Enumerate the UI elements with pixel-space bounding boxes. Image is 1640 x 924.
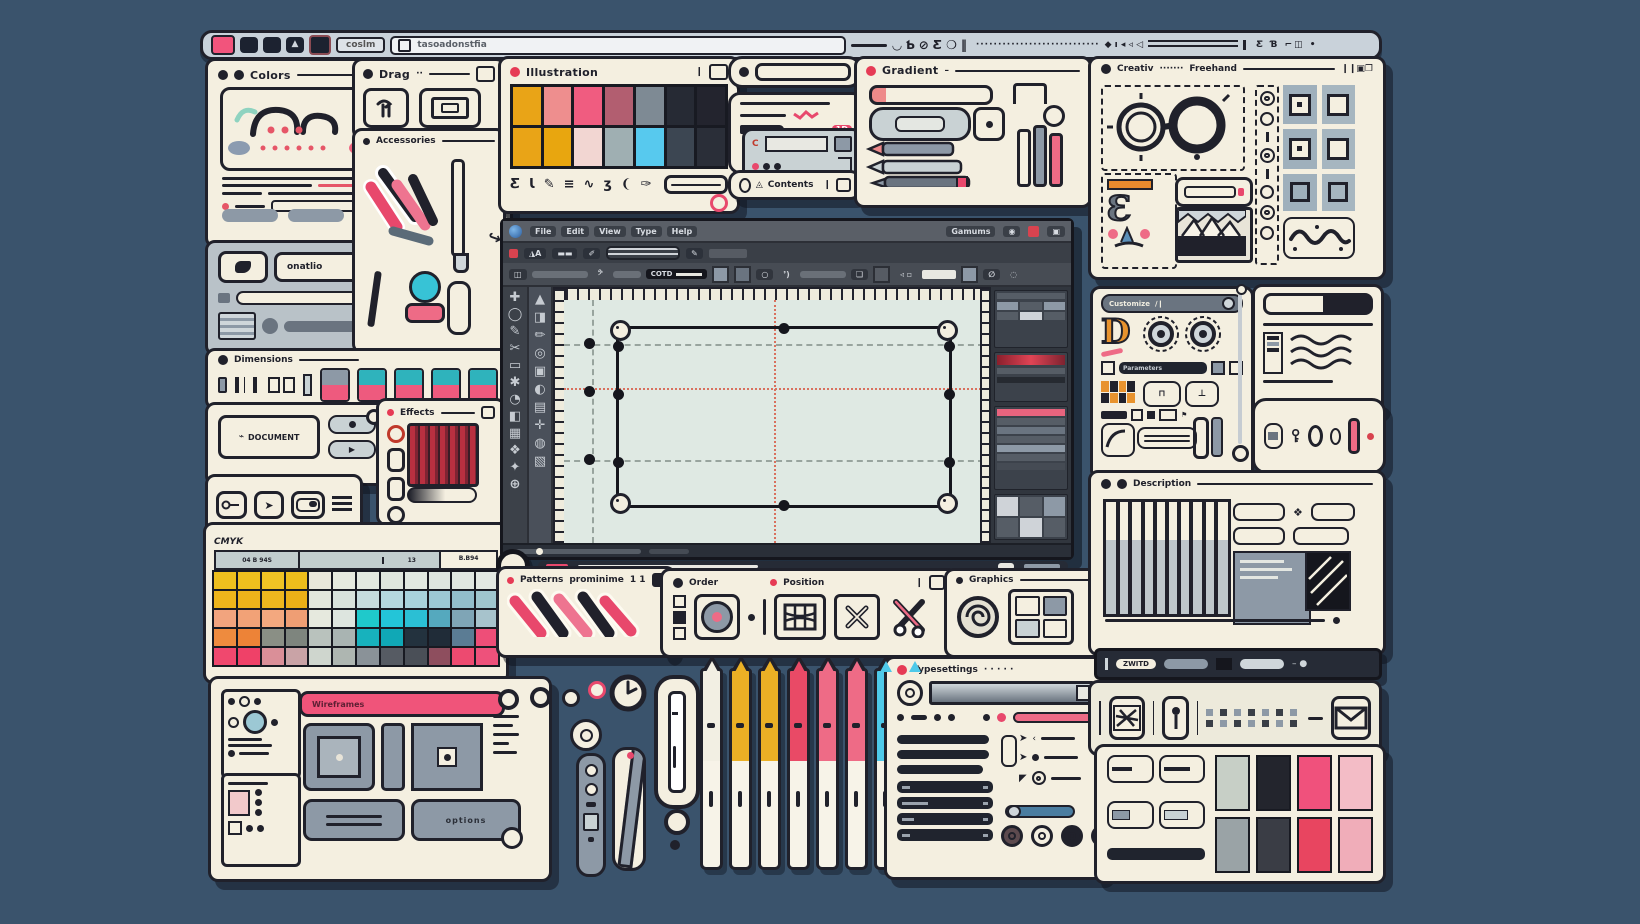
gradient-bar[interactable] <box>407 487 477 503</box>
color-swatch[interactable] <box>262 610 284 627</box>
triangle-tool-button[interactable]: ▲ <box>286 37 304 53</box>
contents-bar[interactable]: ◬ Contents ❙ <box>728 170 862 200</box>
tool-button[interactable] <box>263 37 281 53</box>
menu-item[interactable]: Edit <box>561 226 589 237</box>
chip-button[interactable] <box>357 368 387 402</box>
pen-tool[interactable] <box>451 159 465 257</box>
pen-ring[interactable] <box>664 809 690 835</box>
color-swatch[interactable] <box>262 572 284 589</box>
pink-slider[interactable] <box>1013 712 1095 723</box>
color-swatch[interactable] <box>286 648 308 665</box>
strip-ring[interactable] <box>1260 226 1274 240</box>
color-swatch[interactable] <box>636 87 664 125</box>
dial-knob[interactable] <box>1061 825 1083 847</box>
preset-row[interactable] <box>897 813 993 825</box>
tool-icon[interactable]: ▲ <box>535 293 545 306</box>
column-chart-block[interactable] <box>1103 499 1231 617</box>
square-btn[interactable] <box>873 266 890 283</box>
spiral-tool[interactable] <box>956 595 1000 639</box>
blue-slider[interactable] <box>1005 805 1075 818</box>
color-swatch[interactable] <box>357 572 379 589</box>
color-swatch[interactable] <box>513 128 541 166</box>
header-bar-icon[interactable]: ❙ <box>695 67 703 77</box>
color-swatch[interactable] <box>452 572 474 589</box>
list-pill[interactable] <box>897 750 989 759</box>
color-swatch[interactable] <box>381 610 403 627</box>
header-knob[interactable] <box>1222 297 1235 310</box>
chip-box[interactable] <box>1264 423 1283 449</box>
edge-anchor[interactable] <box>944 341 955 352</box>
panel-corner-icon[interactable] <box>929 575 945 590</box>
edge-anchor[interactable] <box>944 389 955 400</box>
color-swatch[interactable] <box>605 128 633 166</box>
unit-box[interactable] <box>218 377 227 393</box>
circle-icon2[interactable]: ◌ <box>1005 269 1022 280</box>
color-swatch[interactable] <box>286 572 308 589</box>
nib-box[interactable] <box>973 107 1005 141</box>
panel-corner-icon[interactable] <box>481 406 495 419</box>
pen-chip[interactable]: ✐ <box>583 248 600 259</box>
color-swatch[interactable] <box>405 591 427 608</box>
color-swatch[interactable] <box>544 128 572 166</box>
opt-dot[interactable] <box>997 713 1006 722</box>
teal-cap-icon[interactable] <box>409 271 441 303</box>
tool-icon[interactable]: ✏ <box>535 329 546 342</box>
tool-icon[interactable]: ◨ <box>534 311 546 324</box>
airbrush-tool[interactable] <box>869 107 971 141</box>
tool-icon[interactable]: ∿ <box>584 178 595 191</box>
mail-button[interactable] <box>1331 696 1371 740</box>
dial-button[interactable] <box>694 594 740 640</box>
tool-icon[interactable]: ✑ <box>641 178 652 191</box>
track-dot[interactable] <box>1236 284 1247 295</box>
pink-title-bar[interactable]: Wireframes <box>299 691 505 717</box>
list-pill[interactable] <box>897 735 989 744</box>
strip-knob[interactable] <box>1260 205 1275 220</box>
tool-button[interactable] <box>240 37 258 53</box>
tool-icon[interactable]: ◔ <box>509 393 520 406</box>
pencil-pair[interactable] <box>1017 129 1031 187</box>
knob[interactable] <box>387 425 405 443</box>
pencil-pair[interactable] <box>1033 125 1047 187</box>
chip-button[interactable] <box>431 368 461 402</box>
lines-button[interactable] <box>303 799 405 841</box>
chip-button[interactable] <box>320 368 350 402</box>
square-btn[interactable] <box>961 266 978 283</box>
tool-icon[interactable]: ❨ <box>621 178 632 191</box>
marker-pen[interactable] <box>816 668 839 870</box>
circle-btn[interactable]: ○ <box>756 269 773 280</box>
swatch-stack[interactable] <box>303 374 312 396</box>
pen-capsule[interactable] <box>654 675 700 809</box>
chip-button[interactable] <box>468 368 498 402</box>
tool-icon[interactable]: ✦ <box>510 461 521 474</box>
dial-knob[interactable] <box>1031 825 1053 847</box>
color-swatch[interactable] <box>238 591 260 608</box>
tool-icon[interactable]: ◯ <box>508 308 523 321</box>
tool-icon[interactable]: ⊕ <box>510 478 521 491</box>
capsule-tool[interactable] <box>447 281 471 335</box>
strip-ring[interactable] <box>1260 112 1274 126</box>
color-swatch[interactable] <box>238 610 260 627</box>
letter-card[interactable]: Ɛ <box>1101 173 1177 269</box>
tool-icon[interactable]: ▤ <box>534 401 546 414</box>
pink-swatch[interactable] <box>228 790 250 816</box>
panel-corner-icon[interactable] <box>709 64 728 80</box>
tool-icon[interactable]: ◍ <box>534 437 545 450</box>
desc-button[interactable] <box>1293 527 1349 545</box>
color-swatch[interactable] <box>262 648 284 665</box>
corner-handle-nw[interactable] <box>610 320 631 341</box>
red-histogram[interactable] <box>407 423 479 487</box>
asset-row[interactable] <box>1107 755 1154 783</box>
play-button[interactable]: ▶ <box>328 440 376 459</box>
menu-icon[interactable] <box>332 496 352 514</box>
color-swatch[interactable] <box>429 629 451 646</box>
color-swatch[interactable] <box>262 629 284 646</box>
color-swatch[interactable] <box>309 591 331 608</box>
square-btn[interactable] <box>712 266 729 283</box>
vbar[interactable] <box>1211 417 1223 457</box>
color-swatch[interactable] <box>333 572 355 589</box>
dock-panel-transform[interactable] <box>994 290 1068 348</box>
color-swatch[interactable] <box>286 610 308 627</box>
contents-knob[interactable] <box>739 178 751 193</box>
corner-handle-sw[interactable] <box>610 493 631 514</box>
comment-button[interactable] <box>411 723 483 791</box>
white-pill[interactable] <box>922 270 956 279</box>
select-tool[interactable]: ◮A <box>524 248 546 259</box>
square-stack[interactable] <box>673 595 686 640</box>
key-tool[interactable] <box>216 491 247 519</box>
tool-icon[interactable]: ✱ <box>510 376 521 389</box>
color-swatch[interactable] <box>667 128 695 166</box>
mid-handle-s[interactable] <box>779 500 790 511</box>
color-swatch[interactable] <box>429 610 451 627</box>
desc-button[interactable] <box>1311 503 1355 521</box>
striped-box[interactable] <box>218 312 256 340</box>
asset-row[interactable] <box>1107 801 1154 829</box>
window-dot-icon[interactable] <box>234 70 244 80</box>
toggle-dot[interactable] <box>262 318 278 334</box>
small-button[interactable] <box>834 136 852 152</box>
tool-icon[interactable]: ✛ <box>535 419 546 432</box>
text-preview-block[interactable] <box>1233 551 1311 625</box>
image-placeholder[interactable] <box>1305 551 1351 611</box>
color-swatch[interactable] <box>574 87 602 125</box>
frame-tool[interactable] <box>419 88 481 128</box>
color-swatch[interactable] <box>214 572 236 589</box>
orange-grid[interactable] <box>1101 381 1135 403</box>
bracket-widget[interactable]: ⊓ <box>1143 381 1181 407</box>
opt-dot[interactable] <box>934 714 941 721</box>
book-icon[interactable]: ❏ <box>851 269 868 280</box>
tile[interactable] <box>1283 174 1317 211</box>
color-swatch[interactable] <box>1297 817 1332 873</box>
ring-white[interactable] <box>562 689 580 707</box>
mini-slider[interactable] <box>606 246 680 260</box>
toolbar-chip[interactable]: ▬▬ <box>552 248 577 259</box>
h-scrollbar[interactable] <box>511 549 641 554</box>
color-swatch[interactable] <box>1338 755 1373 811</box>
tool-button[interactable] <box>309 35 331 55</box>
header-icons[interactable]: ❙❙▣❐ <box>1341 64 1373 74</box>
lines-box[interactable] <box>1137 427 1197 449</box>
edge-anchor[interactable] <box>613 457 624 468</box>
dock-panel-color[interactable] <box>994 352 1068 402</box>
input-knob[interactable] <box>897 680 923 706</box>
action-button[interactable] <box>222 209 278 222</box>
color-swatch[interactable] <box>357 591 379 608</box>
color-swatch[interactable] <box>357 610 379 627</box>
chip-button[interactable] <box>394 368 424 402</box>
color-swatch[interactable] <box>1256 817 1291 873</box>
color-swatch[interactable] <box>381 629 403 646</box>
bracket-widget[interactable]: ⊥ <box>1185 381 1219 407</box>
marker-bar[interactable] <box>869 85 993 105</box>
slider-capsule[interactable] <box>576 753 606 877</box>
preset-chip[interactable]: ZWITD <box>1116 659 1156 669</box>
mode-field[interactable]: coslm <box>336 37 385 53</box>
color-swatch[interactable] <box>381 648 403 665</box>
flag-icon[interactable]: ◤ <box>1019 773 1027 784</box>
doc-icon[interactable]: ◫ <box>509 269 527 280</box>
pencil-tool[interactable] <box>367 271 382 327</box>
preset-row[interactable] <box>897 781 993 793</box>
marker-pen[interactable] <box>700 668 723 870</box>
tile[interactable] <box>1283 129 1317 168</box>
tile[interactable] <box>1322 85 1356 124</box>
ring-black[interactable] <box>530 687 551 708</box>
cmyk-tab[interactable]: CMYK <box>214 537 243 547</box>
grid-icon[interactable]: ▣ <box>1047 226 1065 237</box>
eraser-pill[interactable] <box>405 303 445 323</box>
menu-item[interactable]: View <box>594 226 626 237</box>
opt-dot[interactable] <box>897 714 904 721</box>
color-swatch[interactable] <box>381 572 403 589</box>
header-slot[interactable] <box>1263 293 1373 315</box>
step-box[interactable] <box>1211 361 1225 375</box>
value-field[interactable] <box>709 249 747 258</box>
arrow-controls[interactable]: ◆ ı ◂ ◃ ◁ <box>1105 40 1144 50</box>
color-swatch[interactable] <box>452 648 474 665</box>
coin-knob[interactable] <box>1330 428 1341 445</box>
dial-knob[interactable] <box>1001 825 1023 847</box>
opt-dot[interactable] <box>983 714 990 721</box>
color-swatch[interactable] <box>214 648 236 665</box>
color-swatch[interactable] <box>214 610 236 627</box>
ring-pink[interactable] <box>588 681 606 699</box>
color-swatch[interactable] <box>1338 817 1373 873</box>
main-input[interactable] <box>929 681 1095 705</box>
edge-anchor[interactable] <box>613 389 624 400</box>
action-button[interactable] <box>288 209 344 222</box>
nested-button[interactable] <box>303 723 375 791</box>
color-swatch[interactable] <box>357 629 379 646</box>
color-swatch[interactable] <box>333 610 355 627</box>
color-swatch[interactable] <box>309 572 331 589</box>
table-button[interactable] <box>774 594 826 640</box>
toggle-tool[interactable] <box>291 491 325 519</box>
tool-icon[interactable]: ✎ <box>510 325 521 338</box>
menu-item[interactable]: File <box>530 226 556 237</box>
color-swatch[interactable] <box>667 87 695 125</box>
tile[interactable] <box>1283 85 1317 124</box>
canvas[interactable] <box>564 300 984 543</box>
tool-icon[interactable]: ◐ <box>534 383 545 396</box>
corner-handle-ne[interactable] <box>937 320 958 341</box>
edge-anchor[interactable] <box>613 341 624 352</box>
cigar-widget[interactable] <box>1175 177 1253 207</box>
cursor-icon[interactable]: ➤ <box>1019 733 1027 744</box>
color-swatch[interactable] <box>1297 755 1332 811</box>
marker-pen[interactable] <box>845 668 868 870</box>
pattern-window[interactable] <box>1008 589 1074 645</box>
color-swatch[interactable] <box>1256 755 1291 811</box>
color-swatch[interactable] <box>405 648 427 665</box>
color-swatch[interactable] <box>636 128 664 166</box>
clip-widget[interactable] <box>1001 735 1017 767</box>
menu-item[interactable]: Type <box>631 226 662 237</box>
right-group[interactable]: Ƹ Ɓ ⌐◫ • <box>1243 40 1317 50</box>
loose-anchor[interactable] <box>584 454 595 465</box>
list-pill[interactable] <box>897 765 983 774</box>
pin-button[interactable] <box>1162 696 1188 740</box>
color-swatch[interactable] <box>605 87 633 125</box>
disc-icon[interactable]: ◉ <box>1003 226 1020 237</box>
color-swatch[interactable] <box>286 629 308 646</box>
address-bar[interactable]: tasoadonstfia <box>390 36 846 55</box>
gray-pill[interactable] <box>1164 659 1208 669</box>
dock-panel-actions[interactable] <box>994 494 1068 540</box>
tile[interactable] <box>1322 174 1356 211</box>
teal-radio[interactable] <box>243 710 267 734</box>
stop-icon[interactable] <box>509 249 518 258</box>
tool-icon[interactable]: ✎ <box>544 178 555 191</box>
scissors-icon[interactable] <box>888 596 930 638</box>
selection-rect[interactable] <box>616 326 952 508</box>
clock-dial[interactable] <box>608 673 648 713</box>
document-field[interactable]: ⌁DOCUMENT <box>218 415 320 459</box>
cursor-icon[interactable]: ➤ <box>1019 752 1027 763</box>
color-swatch[interactable] <box>476 591 498 608</box>
tool-icon[interactable]: ◎ <box>534 347 545 360</box>
color-swatch[interactable] <box>452 591 474 608</box>
text-input[interactable] <box>765 136 828 152</box>
color-swatch[interactable] <box>697 87 725 125</box>
mini-pill[interactable] <box>387 477 405 501</box>
color-swatch[interactable] <box>286 591 308 608</box>
panel-corner-icon[interactable] <box>476 66 495 82</box>
vertical-handle[interactable] <box>381 723 405 791</box>
tool-icon[interactable]: ▣ <box>534 365 546 378</box>
tool-button-active[interactable] <box>211 35 235 55</box>
strip-knob[interactable] <box>1260 148 1275 163</box>
guide-line[interactable] <box>592 300 594 543</box>
asset-row[interactable] <box>1159 755 1206 783</box>
strip-knob[interactable] <box>1260 91 1275 106</box>
preset-row[interactable] <box>897 829 993 841</box>
color-swatch[interactable] <box>476 610 498 627</box>
dock-panel-layers[interactable] <box>994 406 1068 490</box>
color-swatch[interactable] <box>452 629 474 646</box>
checkbox[interactable] <box>228 821 242 835</box>
vpill[interactable] <box>1193 417 1209 459</box>
tiny-toggle[interactable] <box>218 293 230 303</box>
color-swatch[interactable] <box>574 128 602 166</box>
marker-pen[interactable] <box>758 668 781 870</box>
color-swatch[interactable] <box>405 610 427 627</box>
cursor-tool[interactable]: ➤ <box>254 491 285 519</box>
color-swatch[interactable] <box>429 648 451 665</box>
color-swatch[interactable] <box>476 572 498 589</box>
search-pill[interactable] <box>728 56 862 88</box>
preset-row[interactable] <box>897 797 993 809</box>
marker-pen[interactable] <box>729 668 752 870</box>
crayon-tools[interactable] <box>865 139 1005 187</box>
mini-slider[interactable] <box>664 175 728 194</box>
color-swatch[interactable] <box>405 629 427 646</box>
color-swatch[interactable] <box>544 87 572 125</box>
clip-chip[interactable] <box>218 251 268 283</box>
desc-button[interactable] <box>1233 503 1285 521</box>
color-swatch[interactable] <box>405 572 427 589</box>
color-swatch[interactable] <box>381 591 403 608</box>
drop-btn[interactable]: ❜) <box>778 269 794 280</box>
hammer-tool[interactable] <box>363 88 409 128</box>
tool-icon[interactable]: Ɩ <box>529 178 535 191</box>
tool-icon[interactable]: ✂ <box>510 342 521 355</box>
desc-button[interactable] <box>1233 527 1285 545</box>
color-swatch[interactable] <box>309 629 331 646</box>
color-swatch[interactable] <box>333 591 355 608</box>
panel-corner-icon[interactable] <box>836 178 851 192</box>
asset-row[interactable] <box>1159 801 1206 829</box>
brush-icon[interactable]: 𝄢 <box>593 268 608 280</box>
square-btn[interactable] <box>734 266 751 283</box>
marker-pen[interactable] <box>787 668 810 870</box>
pink-lever[interactable] <box>1348 418 1360 454</box>
color-swatch[interactable] <box>238 629 260 646</box>
color-swatch[interactable] <box>333 648 355 665</box>
ring-small[interactable] <box>498 689 519 710</box>
pen-chip2[interactable]: ✎ <box>686 248 703 259</box>
loose-anchor[interactable] <box>584 338 595 349</box>
color-swatch[interactable] <box>309 648 331 665</box>
color-swatch[interactable] <box>238 572 260 589</box>
small-icons[interactable]: ◃ ▫ <box>895 269 917 280</box>
opt-dot[interactable] <box>948 714 955 721</box>
coin-knob[interactable] <box>1308 425 1323 447</box>
search-field[interactable] <box>755 63 851 81</box>
track-ring[interactable] <box>1232 445 1249 462</box>
parameters-field[interactable]: Parameters <box>1119 362 1207 374</box>
color-swatch[interactable] <box>476 629 498 646</box>
mid-handle-n[interactable] <box>779 323 790 334</box>
tool-icon[interactable]: ▭ <box>509 359 521 372</box>
tool-icon[interactable]: ✚ <box>510 291 521 304</box>
color-swatch[interactable] <box>513 87 541 125</box>
sketch-thumbnail[interactable] <box>1109 696 1145 740</box>
tile[interactable] <box>1322 129 1356 168</box>
color-swatch[interactable] <box>429 591 451 608</box>
tool-icon[interactable]: ❖ <box>509 444 521 457</box>
corner-handle-se[interactable] <box>937 493 958 514</box>
tool-icon[interactable]: ▦ <box>509 427 521 440</box>
color-swatch[interactable] <box>357 648 379 665</box>
mini-meter[interactable] <box>1263 332 1283 374</box>
slash-icon[interactable]: ∅ <box>983 269 1000 280</box>
